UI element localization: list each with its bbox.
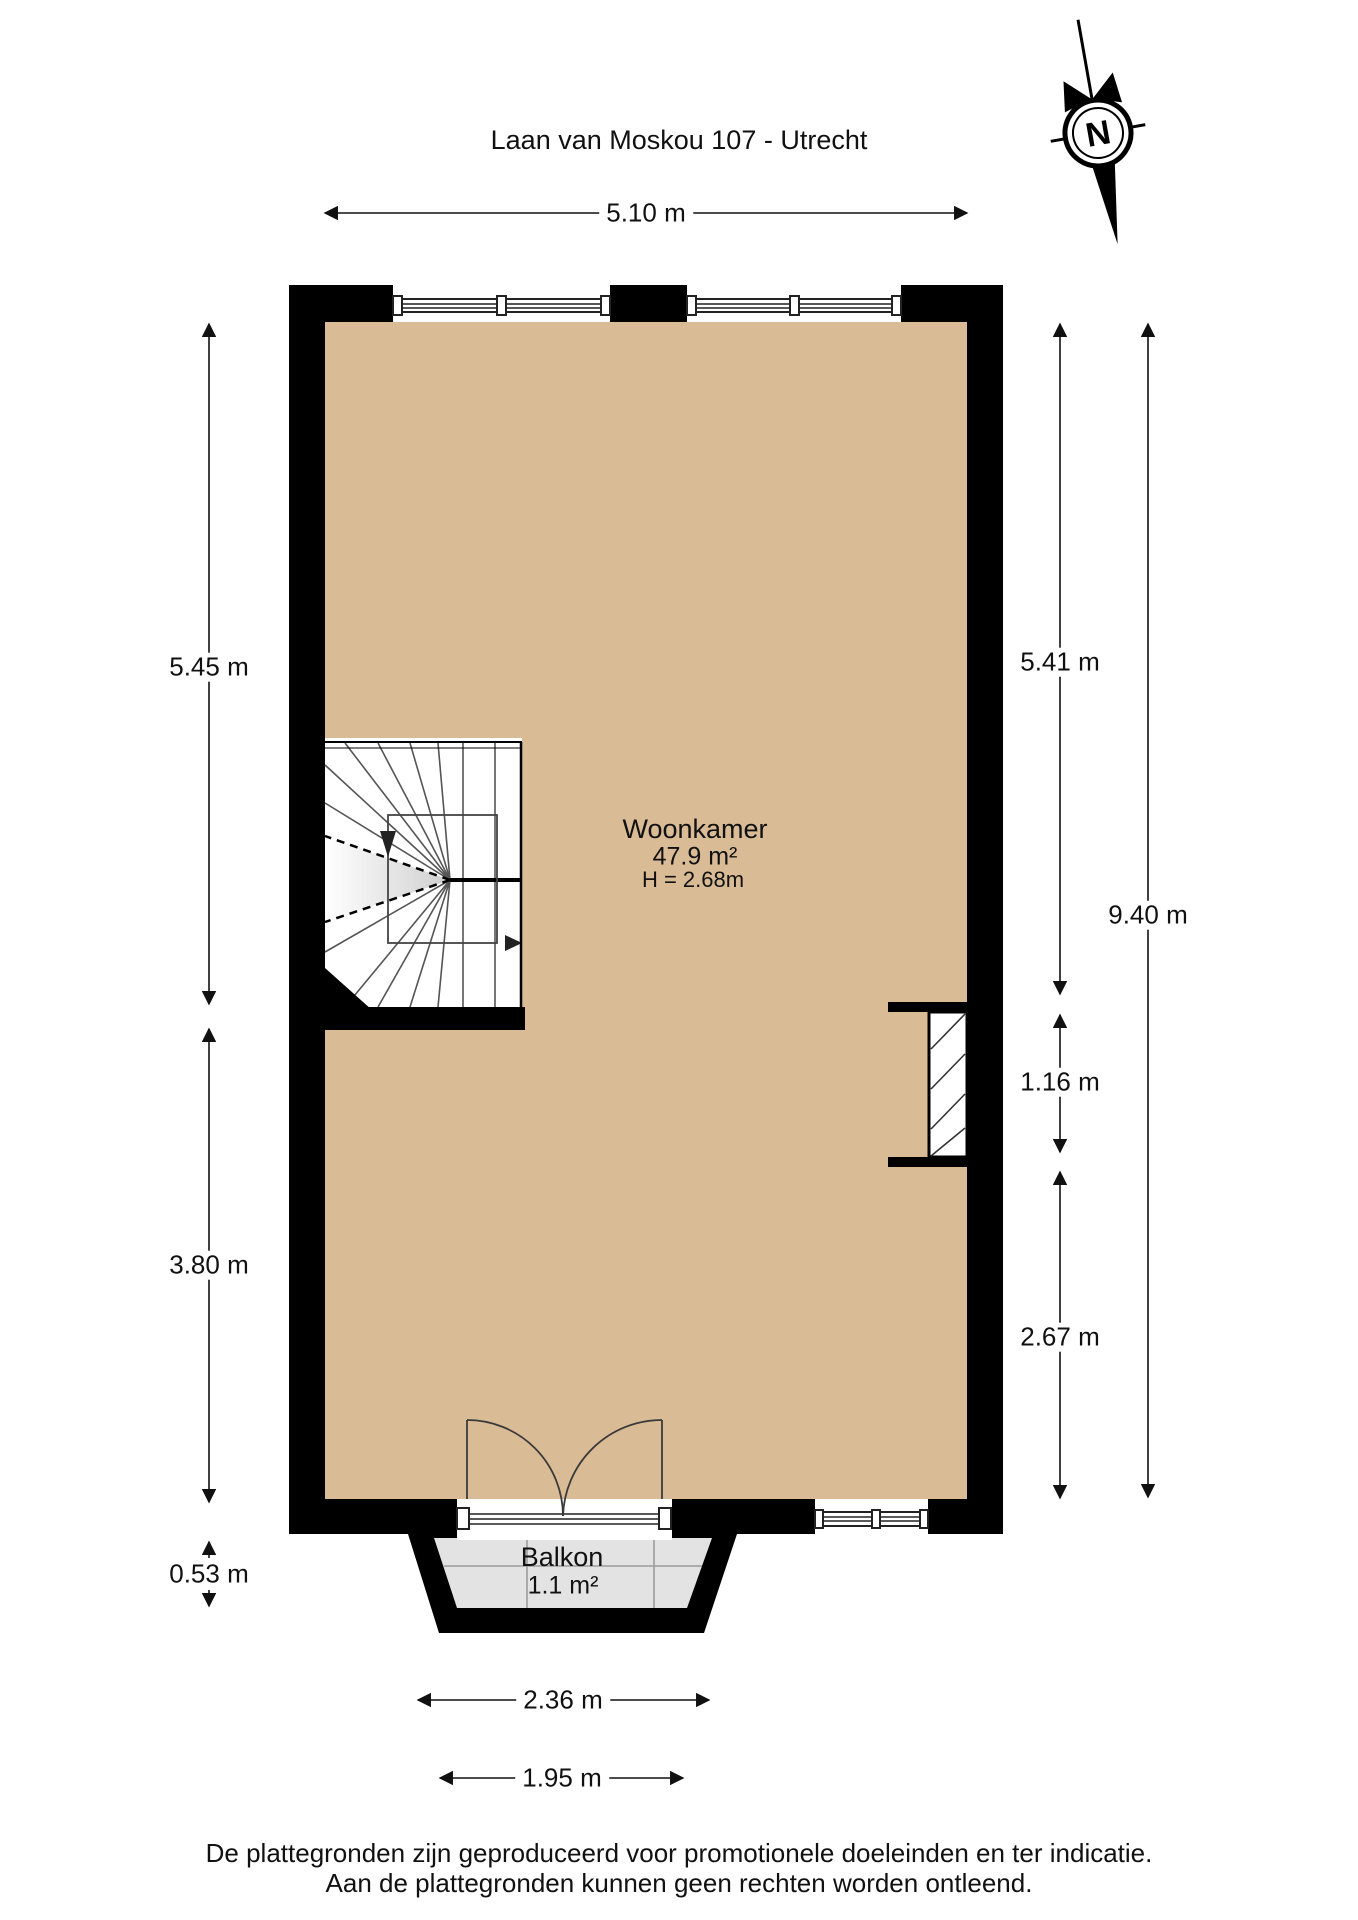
window-bottom	[815, 1499, 928, 1534]
wall-left	[289, 285, 325, 1534]
dim-label-left-upper: 5.45 m	[162, 653, 256, 682]
footer-disclaimer-line2: Aan de plattegronden kunnen geen rechten…	[0, 1868, 1358, 1899]
room-ceiling-woonkamer: H = 2.68m	[642, 868, 744, 892]
dim-label-niche: 1.16 m	[1013, 1068, 1107, 1097]
dim-label-left-lower: 3.80 m	[162, 1251, 256, 1280]
room-label-balkon: Balkon	[521, 1543, 604, 1573]
dim-label-right-lower: 2.67 m	[1013, 1323, 1107, 1352]
room-label-woonkamer: Woonkamer	[622, 815, 767, 845]
dim-label-right-upper: 5.41 m	[1013, 648, 1107, 677]
stairs-south-wall	[325, 1007, 525, 1030]
floorplan-graphic	[0, 0, 1358, 1920]
dim-label-balcony-inner: 1.95 m	[515, 1764, 609, 1793]
floorplan-page: N Laan van Moskou 107 - Utrecht 5.10 m 5…	[0, 0, 1358, 1920]
dim-label-balcony-outer: 2.36 m	[516, 1686, 610, 1715]
plan-title: Laan van Moskou 107 - Utrecht	[491, 126, 868, 156]
stairs	[325, 738, 525, 1030]
room-area-balkon: 1.1 m²	[528, 1572, 599, 1600]
dim-label-balcony-depth: 0.53 m	[162, 1560, 256, 1589]
dim-label-right-total: 9.40 m	[1101, 901, 1195, 930]
window-top-right	[687, 285, 901, 322]
window-top-left	[393, 285, 610, 322]
dim-label-top: 5.10 m	[599, 199, 693, 228]
north-compass-icon: N	[1040, 8, 1160, 253]
footer-disclaimer-line1: De plattegronden zijn geproduceerd voor …	[0, 1838, 1358, 1869]
wall-right	[967, 285, 1003, 1534]
